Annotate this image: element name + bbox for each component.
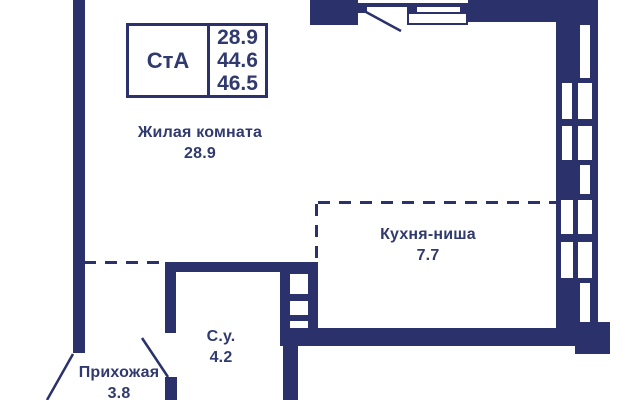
legend-area-value: 28.9: [217, 26, 258, 49]
legend-area-value: 44.6: [217, 49, 258, 72]
ventilation-shaft-cell: [290, 274, 308, 294]
room-label-hallway: Прихожая 3.8: [39, 362, 199, 400]
wall-bathroom-left: [165, 272, 176, 333]
room-label-living: Жилая комната 28.9: [100, 122, 300, 164]
wall-bottom-right-step: [575, 346, 610, 354]
wall-bottom-right-block: [556, 322, 610, 346]
dashed-boundary-kitchen-top: [318, 201, 557, 204]
wall-bottom: [288, 328, 580, 346]
wall-top-pier: [310, 0, 358, 25]
window-right-lower-separator: [561, 234, 592, 242]
wall-left-exterior: [73, 0, 85, 353]
window-right-upper-separator: [562, 119, 592, 126]
room-area: 28.9: [100, 143, 300, 164]
apartment-type-label: СтА: [129, 26, 210, 95]
floor-plan: СтА 28.9 44.6 46.5 Жилая комната 28.9 Ку…: [0, 0, 640, 400]
legend-area-value: 46.5: [217, 72, 258, 95]
ventilation-shaft-cell: [290, 301, 308, 315]
door-swing-balcony: [366, 12, 401, 31]
apartment-areas: 28.9 44.6 46.5: [210, 26, 265, 95]
room-name: С.у.: [171, 326, 271, 347]
window-top: [407, 12, 468, 25]
room-label-kitchen: Кухня-ниша 7.7: [328, 224, 528, 266]
room-area: 3.8: [39, 383, 199, 400]
room-area: 7.7: [328, 245, 528, 266]
window-right-slot-3: [580, 283, 590, 322]
plan-legend: СтА 28.9 44.6 46.5: [126, 23, 268, 98]
room-name: Кухня-ниша: [328, 224, 528, 245]
wall-below-bathroom: [283, 346, 298, 400]
room-name: Жилая комната: [100, 122, 300, 143]
dashed-boundary-hall-living: [84, 261, 165, 264]
window-right-slot-1: [580, 25, 590, 78]
dashed-boundary-kitchen-left: [315, 204, 318, 262]
ventilation-shaft-cell: [290, 321, 308, 328]
window-right-slot-2: [580, 165, 590, 194]
room-name: Прихожая: [39, 362, 199, 383]
window-mullion: [358, 7, 367, 13]
